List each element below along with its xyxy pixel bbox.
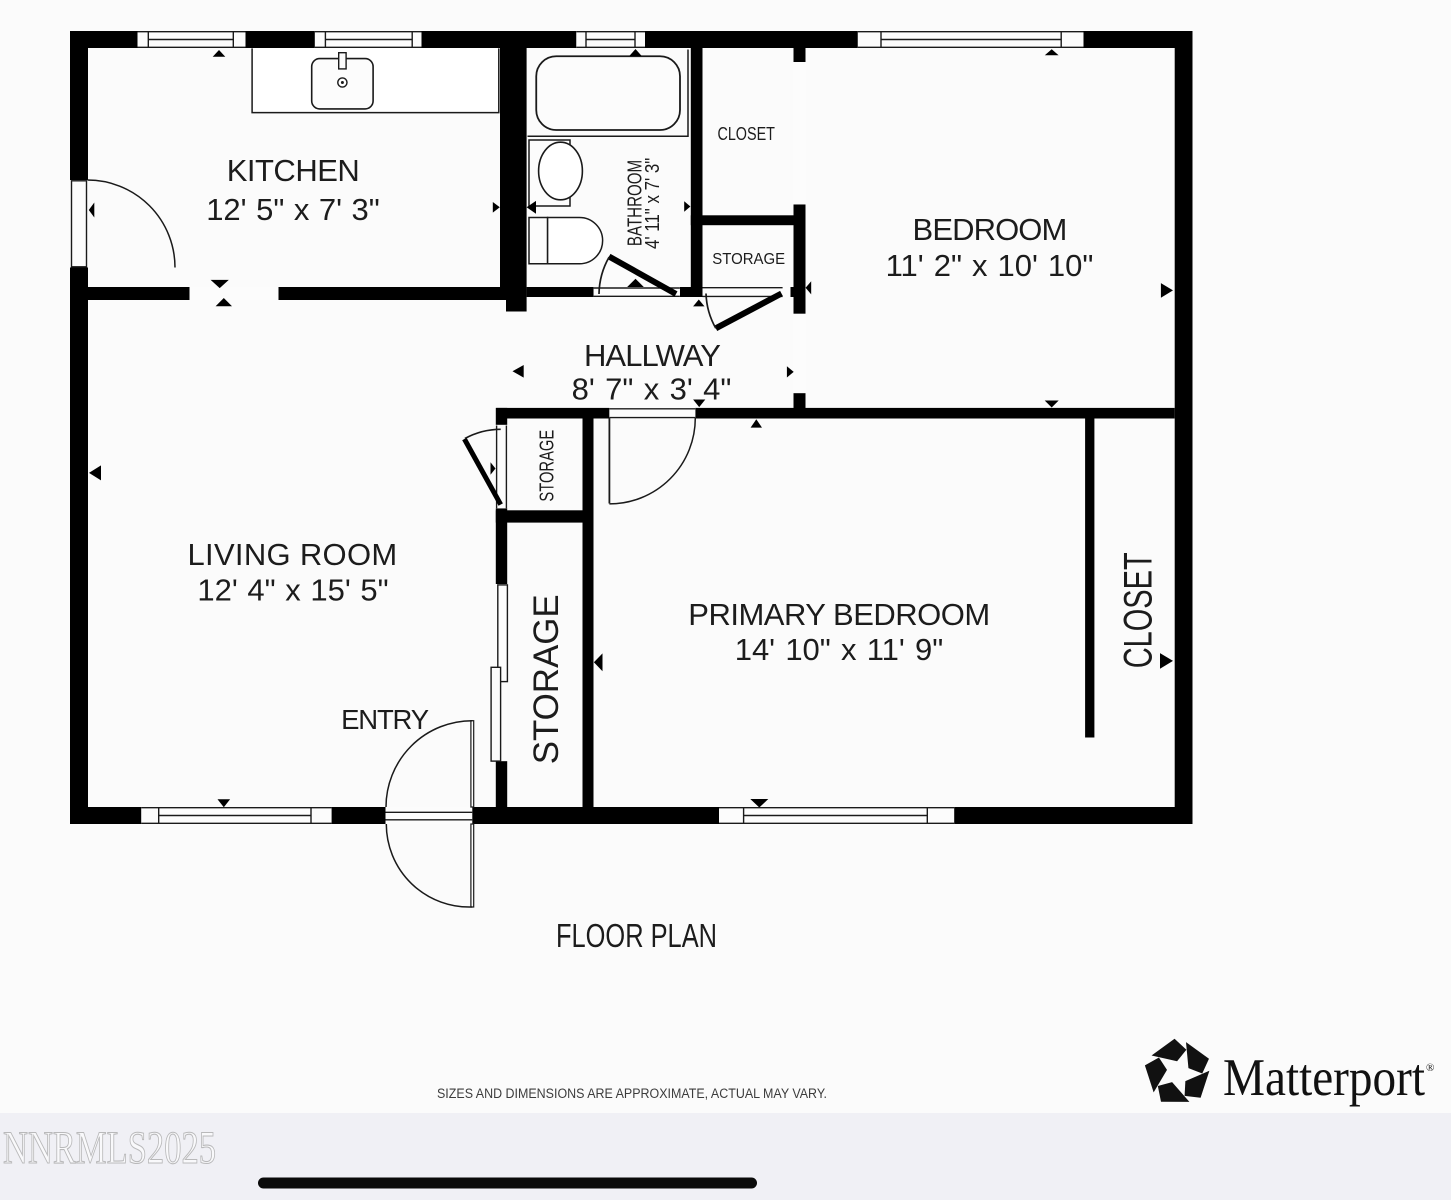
svg-text:CLOSET: CLOSET: [1117, 552, 1161, 668]
svg-text:STORAGE: STORAGE: [712, 251, 785, 268]
svg-text:STORAGE: STORAGE: [536, 430, 558, 502]
svg-text:4' 11" x 7' 3": 4' 11" x 7' 3": [642, 158, 664, 249]
svg-text:ENTRY: ENTRY: [341, 704, 429, 735]
svg-text:12' 5" x 7' 3": 12' 5" x 7' 3": [206, 192, 380, 227]
svg-text:NNRMLS2025: NNRMLS2025: [3, 1122, 216, 1174]
svg-text:Matterport: Matterport: [1223, 1049, 1425, 1107]
svg-text:LIVING ROOM: LIVING ROOM: [188, 537, 398, 572]
svg-text:BEDROOM: BEDROOM: [913, 212, 1067, 247]
svg-text:12' 4" x 15' 5": 12' 4" x 15' 5": [197, 573, 388, 608]
svg-text:CLOSET: CLOSET: [717, 123, 775, 144]
svg-text:11' 2" x 10' 10": 11' 2" x 10' 10": [886, 248, 1094, 283]
svg-text:KITCHEN: KITCHEN: [227, 153, 360, 188]
svg-text:STORAGE: STORAGE: [527, 594, 566, 764]
svg-text:SIZES AND DIMENSIONS ARE APPRO: SIZES AND DIMENSIONS ARE APPROXIMATE, AC…: [437, 1086, 827, 1101]
svg-text:HALLWAY: HALLWAY: [584, 338, 720, 373]
svg-text:PRIMARY BEDROOM: PRIMARY BEDROOM: [688, 597, 989, 632]
svg-text:®: ®: [1426, 1062, 1434, 1074]
svg-text:14' 10" x 11' 9": 14' 10" x 11' 9": [735, 632, 944, 667]
svg-text:8' 7" x 3' 4": 8' 7" x 3' 4": [572, 372, 732, 407]
svg-text:FLOOR PLAN: FLOOR PLAN: [556, 917, 717, 954]
